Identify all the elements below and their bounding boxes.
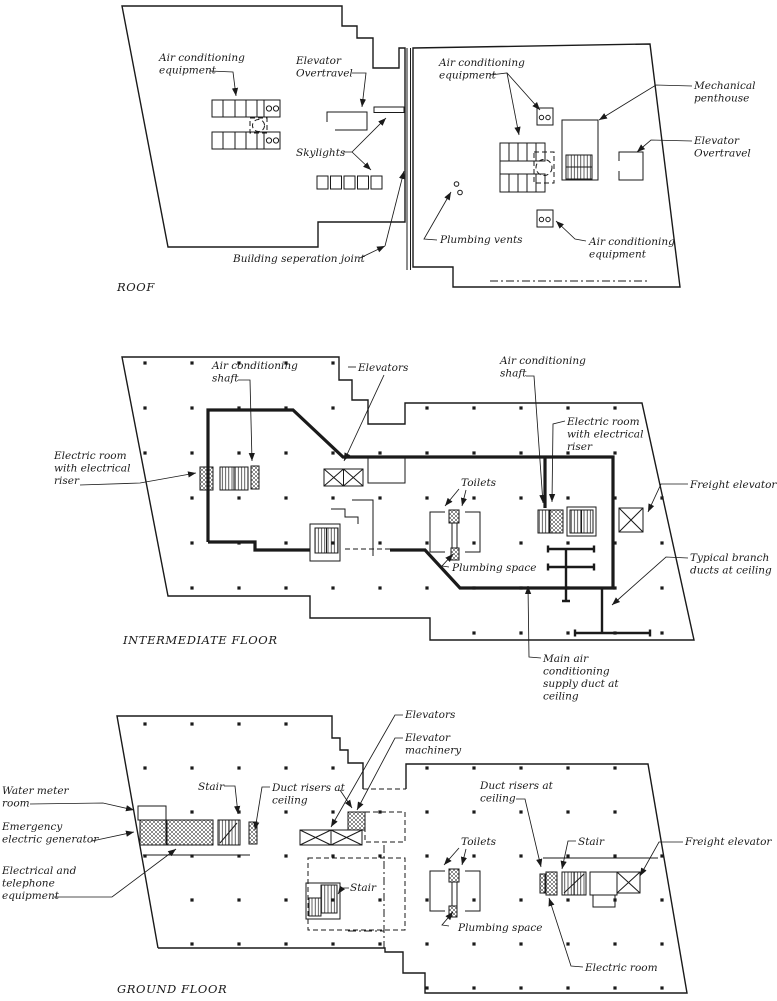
label-elevator-machinery: Elevatormachinery: [404, 732, 462, 757]
column-dots-ground: [143, 722, 663, 989]
label-ac-shaft-left: Air conditioningshaft: [211, 360, 298, 385]
label-water-meter-room: Water meterroom: [2, 785, 70, 810]
leader-elevator-machinery: [357, 738, 403, 810]
roof-plan: Air conditioningequipment ElevatorOvertr…: [116, 6, 756, 294]
leader-ac-shaft-right: [526, 376, 543, 503]
elevator-bank-intermediate: [324, 458, 405, 486]
label-typical-branch-ducts: Typical branchducts at ceiling: [690, 552, 772, 577]
label-stair-mid: Stair: [350, 882, 377, 894]
caption-ground-floor: GROUND FLOOR: [117, 982, 227, 996]
leader-electric-room-ground: [549, 898, 583, 967]
leader-elevators: [344, 375, 384, 461]
leader-stair-left: [224, 786, 238, 814]
label-toilets-intermediate: Toilets: [461, 477, 497, 489]
leader-separation-joint-b: [385, 171, 404, 246]
caption-intermediate-floor: INTERMEDIATE FLOOR: [122, 633, 278, 647]
label-emergency-generator: Emergencyelectric generator: [1, 821, 99, 846]
leader-main-supply-duct: [528, 586, 541, 658]
label-ac-equipment-right-bottom: Air conditioningequipment: [588, 236, 675, 261]
leader-emergency-generator: [92, 832, 134, 841]
toilet-core-intermediate: [430, 510, 480, 560]
label-main-supply-duct: Main airconditioningsupply duct atceilin…: [542, 653, 619, 703]
plumbing-vent-circles: [454, 182, 462, 195]
label-duct-risers-right: Duct risers atceiling: [479, 780, 554, 805]
label-elevator-overtravel-right: ElevatorOvertravel: [693, 135, 751, 160]
roof-leader-lines: [210, 71, 692, 258]
leader-electric-room-left: [80, 473, 196, 485]
stair-mid-intermediate: [310, 500, 373, 561]
label-plumbing-space-ground: Plumbing space: [457, 922, 543, 934]
leader-electric-room-right: [552, 421, 565, 502]
intermediate-leader-lines: [80, 367, 688, 658]
stair-mid-ground: [306, 883, 340, 919]
leader-toilets-b: [462, 490, 466, 506]
branch-ducts: [548, 546, 650, 637]
floor-plans-page: Air conditioningequipment ElevatorOvertr…: [0, 0, 777, 1001]
leader-skylights-strip: [343, 118, 386, 152]
label-skylights: Skylights: [296, 147, 346, 159]
freight-elevator-box-ground: [617, 872, 640, 893]
leader-elevator-overtravel-right: [637, 140, 692, 152]
label-ac-shaft-right: Air conditioningshaft: [499, 355, 586, 380]
building-joint-line-ground: [348, 845, 384, 948]
leader-typical-branch-ducts: [612, 557, 688, 605]
electric-room-right-core: [538, 507, 596, 536]
leader-water-meter-room: [30, 803, 134, 810]
leader-elevators-ground: [331, 715, 403, 827]
leader-plumbing-space-ground: [442, 912, 453, 926]
leader-toilets-ground-b: [462, 849, 466, 865]
leader-skylights-squares: [352, 152, 371, 170]
label-freight-elevator-intermediate: Freight elevator: [689, 479, 777, 491]
label-electric-room-left: Electric roomwith electricalriser: [53, 450, 130, 487]
label-ac-equipment-left: Air conditioningequipment: [158, 52, 245, 77]
label-elevator-overtravel-left: ElevatorOvertravel: [295, 55, 353, 80]
label-stair-right: Stair: [578, 836, 605, 848]
label-stair-left: Stair: [198, 781, 225, 793]
skylight-squares: [317, 176, 382, 189]
label-electric-room-ground: Electric room: [584, 962, 658, 974]
leader-freight-elevator: [648, 484, 688, 512]
roof-ac-equipment-left-units: [212, 100, 280, 149]
label-electric-room-right: Electric roomwith electricalriser: [566, 416, 643, 453]
intermediate-floor-plan: Air conditioningshaft Elevators Air cond…: [53, 355, 777, 703]
label-plumbing-vents: Plumbing vents: [439, 234, 523, 246]
roof-left-building-outline: [122, 6, 405, 247]
ground-right-core: [540, 858, 658, 907]
freight-elevator-box-intermediate: [619, 508, 643, 532]
leader-toilets-ground-a: [444, 848, 459, 865]
label-ac-equipment-right-top: Air conditioningequipment: [438, 57, 525, 82]
leader-ac-equipment-right-top-b: [507, 73, 519, 135]
mechanical-penthouse-outline: [562, 120, 598, 180]
elevator-machinery-box: [348, 812, 365, 830]
label-mechanical-penthouse: Mechanicalpenthouse: [693, 80, 756, 105]
label-elevators-intermediate: Elevators: [357, 362, 409, 374]
leader-ac-shaft-left: [238, 380, 252, 461]
label-toilets-ground: Toilets: [461, 836, 497, 848]
label-freight-elevator-ground: Freight elevator: [684, 836, 772, 848]
label-building-separation-joint: Building seperation joint: [232, 253, 366, 265]
leader-elevator-overtravel-left: [352, 73, 366, 107]
leader-plumbing-vents: [424, 192, 451, 240]
caption-roof: ROOF: [116, 280, 155, 294]
ground-floor-outline-right: [158, 764, 687, 993]
skylight-strip: [374, 107, 404, 113]
roof-elevator-overtravel-right-box: [619, 152, 643, 180]
leader-ac-equipment-right-top-a: [490, 73, 540, 110]
ground-floor-plan: Water meterroom Emergencyelectric genera…: [1, 709, 772, 996]
floor-plans-figure: Air conditioningequipment ElevatorOvertr…: [0, 0, 777, 1001]
label-electrical-telephone: Electrical andtelephoneequipment: [1, 865, 77, 902]
roof-ac-equipment-right-units: [500, 108, 554, 227]
label-plumbing-space-intermediate: Plumbing space: [451, 562, 537, 574]
leader-mechanical-penthouse: [599, 85, 692, 120]
electric-room-left-core: [200, 466, 259, 490]
leader-toilets-a: [445, 489, 459, 506]
label-elevators-ground: Elevators: [404, 709, 456, 721]
leader-ac-equipment-right-bottom: [556, 221, 586, 241]
building-separation-joint-lines: [407, 48, 411, 270]
label-duct-risers-left: Duct risers atceiling: [271, 782, 346, 807]
roof-elevator-overtravel-left-box: [327, 112, 367, 130]
toilet-core-ground: [430, 869, 480, 917]
